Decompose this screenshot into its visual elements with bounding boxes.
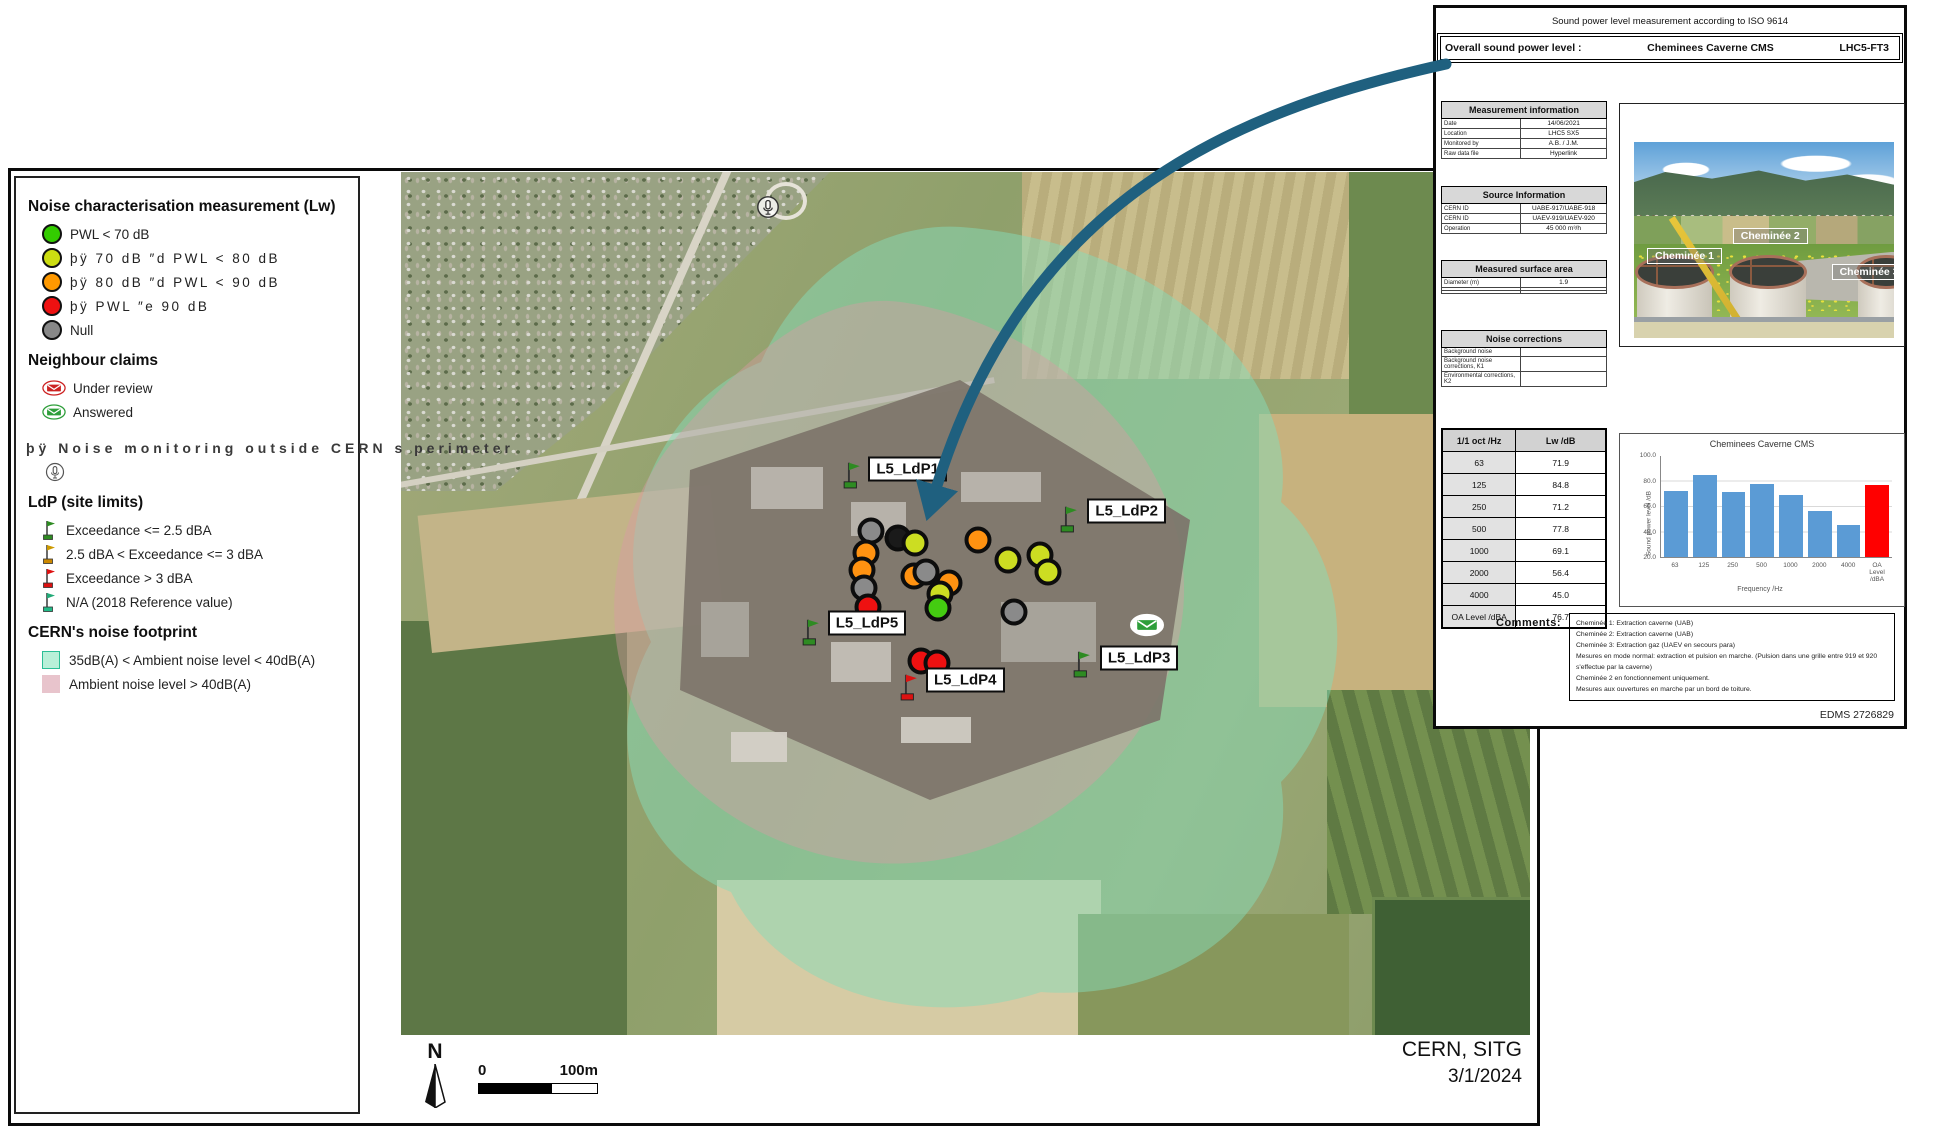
chimney-2-label: Cheminée 2: [1733, 228, 1808, 244]
flag-icon: [42, 543, 58, 565]
legend-item: Under review: [42, 376, 358, 400]
north-label: N: [415, 1040, 455, 1064]
table-row-value: A.B. / J.M.: [1521, 139, 1607, 149]
scale-bar-graphic: [478, 1083, 598, 1094]
oct-level: 45.0: [1516, 584, 1606, 606]
scale-bar: 0 100m: [478, 1062, 598, 1094]
north-indicator: N: [415, 1040, 455, 1113]
credit-date: 3/1/2024: [1254, 1066, 1522, 1088]
chart-x-tick: 125: [1692, 562, 1716, 583]
table-row-value: UABE-917/UABE-918: [1521, 204, 1607, 214]
perimeter-microphone-icon: [756, 195, 780, 219]
map-credit: CERN, SITG 3/1/2024: [1254, 1038, 1522, 1088]
legend-item-label: þÿ 70 dB ″d PWL < 80 dB: [70, 251, 280, 266]
credit-source: CERN, SITG: [1254, 1038, 1522, 1062]
answered-claim-envelope-icon: [1130, 613, 1164, 637]
map-overlays: [401, 172, 1530, 1035]
table-row-label: Location: [1442, 129, 1521, 139]
chart-y-tick: 100.0: [1628, 452, 1656, 459]
legend-item: [42, 460, 358, 484]
ldp-label-L5_LdP4: L5_LdP4: [926, 668, 1005, 693]
chart-bar-OA Level /dBA: [1865, 485, 1889, 557]
chimney-3-label: Cheminée 3: [1832, 264, 1894, 280]
comments-box: Cheminée 1: Extraction caverne (UAB)Chem…: [1569, 613, 1895, 701]
measurement-point-gray: [1001, 599, 1028, 626]
chart-y-axis-label: Sound power level /dB: [1646, 469, 1653, 579]
table-row-label: Environmental corrections, K2: [1442, 372, 1521, 387]
ldp-label-L5_LdP3: L5_LdP3: [1100, 645, 1179, 670]
sound-power-report-panel: Sound power level measurement according …: [1433, 5, 1907, 729]
table-row-value: [1521, 291, 1607, 294]
legend-item: Answered: [42, 400, 358, 424]
ldp-flag-L5_LdP5: [801, 617, 823, 647]
table-row-value: UAEV-919/UAEV-920: [1521, 214, 1607, 224]
table-row-label: Monitored by: [1442, 139, 1521, 149]
chart-y-tick: 40.0: [1628, 529, 1656, 536]
comment-line: Cheminée 2: Extraction caverne (UAB): [1576, 629, 1888, 640]
footprint-swatch-icon: [42, 675, 60, 693]
chart-bar-1000: [1779, 495, 1803, 557]
table-row-value: 14/06/2021: [1521, 119, 1607, 129]
oct-frequency: 500: [1442, 518, 1516, 540]
measurement-circle-icon: [42, 224, 62, 244]
oct-frequency: 63: [1442, 452, 1516, 474]
scale-end-label: 100m: [560, 1062, 598, 1079]
flag-icon: [42, 591, 58, 613]
chart-bar-63: [1664, 491, 1688, 557]
footprint-swatch-icon: [42, 651, 60, 669]
chart-bar-2000: [1808, 511, 1832, 557]
envelope-icon: [42, 380, 66, 396]
table-row-value: [1521, 357, 1607, 372]
overall-sound-power-row: Overall sound power level : Cheminees Ca…: [1440, 36, 1900, 60]
table-row-value[interactable]: Hyperlink: [1521, 149, 1607, 159]
panel-table: Measured surface areaDiameter (m)1.9: [1441, 260, 1607, 294]
legend-section-title: Noise characterisation measurement (Lw): [28, 198, 358, 216]
legend-item-label: N/A (2018 Reference value): [66, 595, 233, 610]
chart-bar-4000: [1837, 525, 1861, 557]
legend-item-label: þÿ 80 dB ″d PWL < 90 dB: [70, 275, 280, 290]
legend-section-title: CERN's noise footprint: [28, 624, 358, 642]
ldp-flag-L5_LdP1: [842, 460, 864, 490]
chart-x-axis-label: Frequency /Hz: [1660, 586, 1860, 593]
legend-item-label: PWL < 70 dB: [70, 227, 149, 242]
table-row-label: [1442, 291, 1521, 294]
north-arrow-icon: [422, 1064, 448, 1108]
table-row-value: [1521, 348, 1607, 357]
table-row-label: Background noise corrections, K1: [1442, 357, 1521, 372]
legend-item: N/A (2018 Reference value): [42, 590, 358, 614]
measurement-circle-icon: [42, 248, 62, 268]
ldp-flag-L5_LdP4: [899, 672, 921, 702]
chart-y-tick: 60.0: [1628, 503, 1656, 510]
legend-item: Exceedance <= 2.5 dBA: [42, 518, 358, 542]
legend-item-label: Null: [70, 323, 93, 338]
table-row-value: [1521, 372, 1607, 387]
sound-power-chart: Cheminees Caverne CMS Sound power level …: [1619, 433, 1905, 607]
ldp-label-L5_LdP5: L5_LdP5: [828, 611, 907, 636]
table-row-value: 1.9: [1521, 278, 1607, 288]
oct-frequency: 2000: [1442, 562, 1516, 584]
measurement-point-green: [925, 594, 952, 621]
oct-level: 77.8: [1516, 518, 1606, 540]
comments-label: Comments:: [1496, 617, 1561, 629]
legend-panel: Noise characterisation measurement (Lw)P…: [14, 176, 360, 1114]
measurement-point-yellow: [995, 547, 1022, 574]
legend-item: PWL < 70 dB: [42, 222, 358, 246]
table-row-value: 45 000 m³/h: [1521, 224, 1607, 234]
comment-line: Cheminée 1: Extraction caverne (UAB): [1576, 618, 1888, 629]
scale-start-label: 0: [478, 1062, 486, 1079]
legend-item: þÿ 80 dB ″d PWL < 90 dB: [42, 270, 358, 294]
chart-x-tick: 2000: [1807, 562, 1831, 583]
chart-x-tick: OALevel/dBA: [1865, 562, 1889, 583]
legend-item-label: Under review: [73, 381, 153, 396]
oct-frequency: 125: [1442, 474, 1516, 496]
panel-table: Measurement informationDate14/06/2021Loc…: [1441, 101, 1607, 159]
site-photo: Cheminée 1 Cheminée 2 Cheminée 3: [1634, 142, 1894, 338]
legend-item-label: Ambient noise level > 40dB(A): [69, 677, 251, 692]
ldp-flag-L5_LdP2: [1059, 504, 1081, 534]
chart-title: Cheminees Caverne CMS: [1620, 439, 1904, 449]
legend-section-title: Neighbour claims: [28, 352, 358, 370]
panel-table: Noise correctionsBackground noiseBackgro…: [1441, 330, 1607, 387]
legend-overflow-line: þÿ Noise monitoring outside CERN s perim…: [26, 440, 726, 456]
chart-bar-125: [1693, 475, 1717, 557]
flag-icon: [42, 519, 58, 541]
table-row-label: Operation: [1442, 224, 1521, 234]
comment-line: Mesures en mode normal: extraction et pu…: [1576, 651, 1888, 662]
ldp-label-L5_LdP2: L5_LdP2: [1087, 499, 1166, 524]
oct-frequency: 250: [1442, 496, 1516, 518]
oct-level: 69.1: [1516, 540, 1606, 562]
comment-line: Mesures aux ouvertures en marche par un …: [1576, 684, 1888, 695]
overall-label: Overall sound power level :: [1445, 42, 1582, 54]
comment-line: Cheminée 2 en fonctionnement uniquement.: [1576, 673, 1888, 684]
oct-header-lw: Lw /dB: [1516, 429, 1606, 452]
oct-level: 84.8: [1516, 474, 1606, 496]
flag-icon: [42, 567, 58, 589]
location-code: LHC5-FT3: [1839, 42, 1889, 54]
chart-x-tick: 1000: [1779, 562, 1803, 583]
legend-item: þÿ 70 dB ″d PWL < 80 dB: [42, 246, 358, 270]
table-row-label: Diameter (m): [1442, 278, 1521, 288]
legend-item-label: þÿ PWL ″e 90 dB: [70, 299, 209, 314]
panel-table-title: Noise corrections: [1442, 331, 1607, 348]
oct-level: 71.9: [1516, 452, 1606, 474]
panel-table-title: Measured surface area: [1442, 261, 1607, 278]
legend-item-label: Answered: [73, 405, 133, 420]
panel-table: Source InformationCERN IDUABE-917/UABE-9…: [1441, 186, 1607, 234]
table-row-label: Raw data file: [1442, 149, 1521, 159]
ldp-label-L5_LdP1: L5_LdP1: [868, 456, 947, 481]
microphone-icon: [45, 462, 65, 482]
table-row-value: LHC5 SX5: [1521, 129, 1607, 139]
legend-item-label: 35dB(A) < Ambient noise level < 40dB(A): [69, 653, 315, 668]
oct-header-freq: 1/1 oct /Hz: [1442, 429, 1516, 452]
measurement-circle-icon: [42, 272, 62, 292]
legend-item: þÿ PWL ″e 90 dB: [42, 294, 358, 318]
legend-item: Null: [42, 318, 358, 342]
oct-level: 71.2: [1516, 496, 1606, 518]
table-row-label: Date: [1442, 119, 1521, 129]
edms-number: EDMS 2726829: [1820, 709, 1894, 721]
comment-line: s'effectue par la caverne): [1576, 662, 1888, 673]
octave-band-table: 1/1 oct /HzLw /dB6371.912584.825071.2500…: [1441, 428, 1607, 629]
legend-item-label: 2.5 dBA < Exceedance <= 3 dBA: [66, 547, 263, 562]
chart-x-tick: 63: [1663, 562, 1687, 583]
photo-roof-edge: [1634, 322, 1894, 338]
chart-bar-500: [1750, 484, 1774, 557]
legend-section-title: LdP (site limits): [28, 494, 358, 512]
legend-item-label: Exceedance <= 2.5 dBA: [66, 523, 212, 538]
oct-level: 56.4: [1516, 562, 1606, 584]
chart-bar-250: [1722, 492, 1746, 557]
table-row-label: CERN ID: [1442, 214, 1521, 224]
chart-y-tick: 20.0: [1628, 554, 1656, 561]
oct-frequency: 1000: [1442, 540, 1516, 562]
table-row-label: Background noise: [1442, 348, 1521, 357]
measurement-point-orange: [964, 526, 991, 553]
legend-item-label: Exceedance > 3 dBA: [66, 571, 192, 586]
legend-item: Exceedance > 3 dBA: [42, 566, 358, 590]
measurement-circle-icon: [42, 296, 62, 316]
chart-x-tick: 4000: [1836, 562, 1860, 583]
source-name: Cheminees Caverne CMS: [1582, 42, 1840, 54]
chart-plot-area: [1660, 456, 1892, 558]
panel-table-title: Source Information: [1442, 187, 1607, 204]
table-row-label: CERN ID: [1442, 204, 1521, 214]
oct-frequency: 4000: [1442, 584, 1516, 606]
aerial-map: L5_LdP1 L5_LdP2 L5_LdP3 L5_LdP4 L5_LdP5: [401, 172, 1530, 1035]
comment-line: Cheminée 3: Extraction gaz (UAEV en seco…: [1576, 640, 1888, 651]
measurement-circle-icon: [42, 320, 62, 340]
chart-x-tick: 250: [1721, 562, 1745, 583]
report-title: Sound power level measurement according …: [1436, 16, 1904, 27]
envelope-icon: [42, 404, 66, 420]
ldp-flag-L5_LdP3: [1072, 649, 1094, 679]
legend-item: 35dB(A) < Ambient noise level < 40dB(A): [42, 648, 358, 672]
legend-item: 2.5 dBA < Exceedance <= 3 dBA: [42, 542, 358, 566]
measurement-point-yellow: [1034, 559, 1061, 586]
measurement-point-yellow: [901, 530, 928, 557]
chart-x-tick: 500: [1750, 562, 1774, 583]
chimney-1-label: Cheminée 1: [1647, 248, 1722, 264]
panel-table-title: Measurement information: [1442, 102, 1607, 119]
legend-item: Ambient noise level > 40dB(A): [42, 672, 358, 696]
site-photo-box: Cheminée 1 Cheminée 2 Cheminée 3: [1619, 103, 1905, 347]
chart-y-tick: 80.0: [1628, 478, 1656, 485]
